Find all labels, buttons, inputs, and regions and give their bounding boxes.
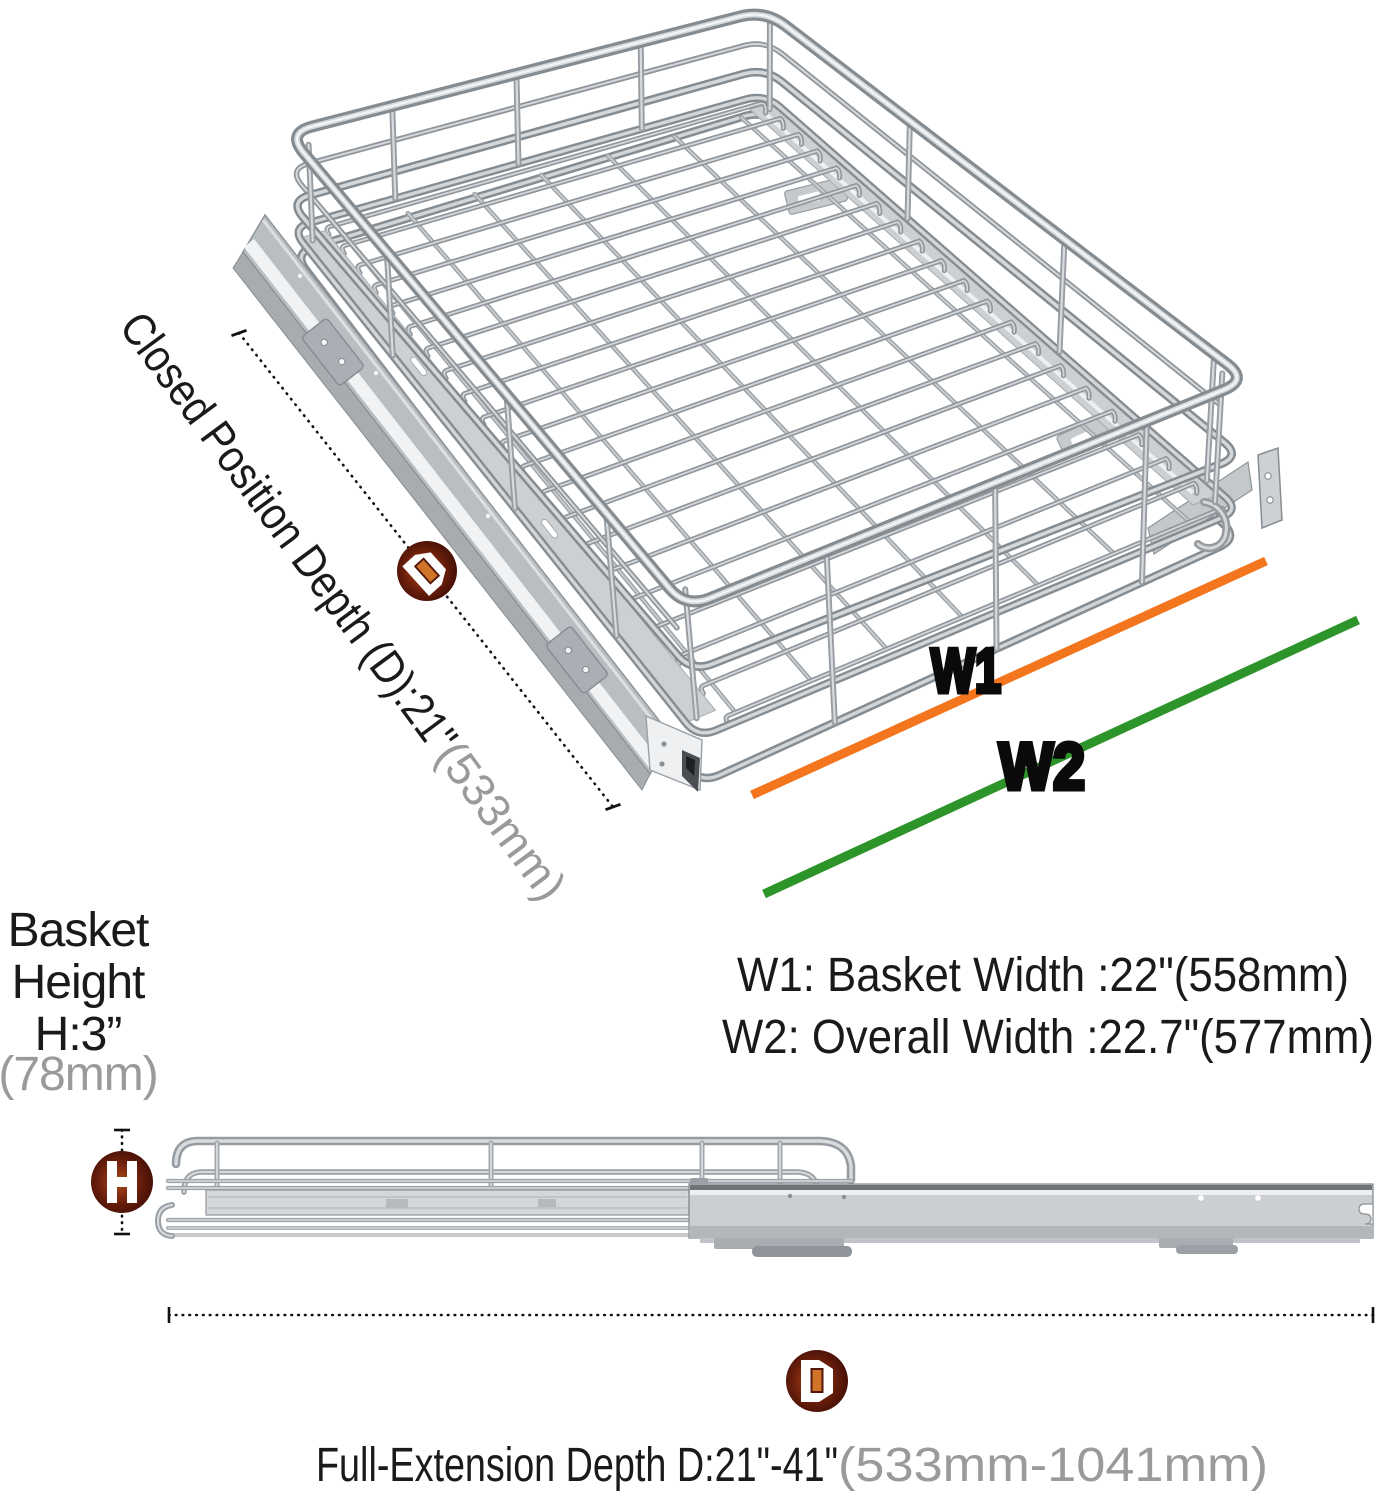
svg-text:W1: W1 xyxy=(931,637,1001,706)
svg-text:Height: Height xyxy=(12,956,145,1009)
svg-text:Full-Extension Depth D:21"-41": Full-Extension Depth D:21"-41" xyxy=(316,1439,838,1492)
svg-text:W2: Overall Width :22.7"(577mm: W2: Overall Width :22.7"(577mm) xyxy=(722,1011,1374,1064)
svg-text:W1: Basket Width :22"(558mm): W1: Basket Width :22"(558mm) xyxy=(737,949,1349,1002)
svg-text:(533mm-1041mm): (533mm-1041mm) xyxy=(838,1439,1268,1492)
svg-text:W2: W2 xyxy=(999,729,1085,803)
svg-text:(78mm): (78mm) xyxy=(0,1048,158,1101)
svg-text:Basket: Basket xyxy=(8,904,149,957)
